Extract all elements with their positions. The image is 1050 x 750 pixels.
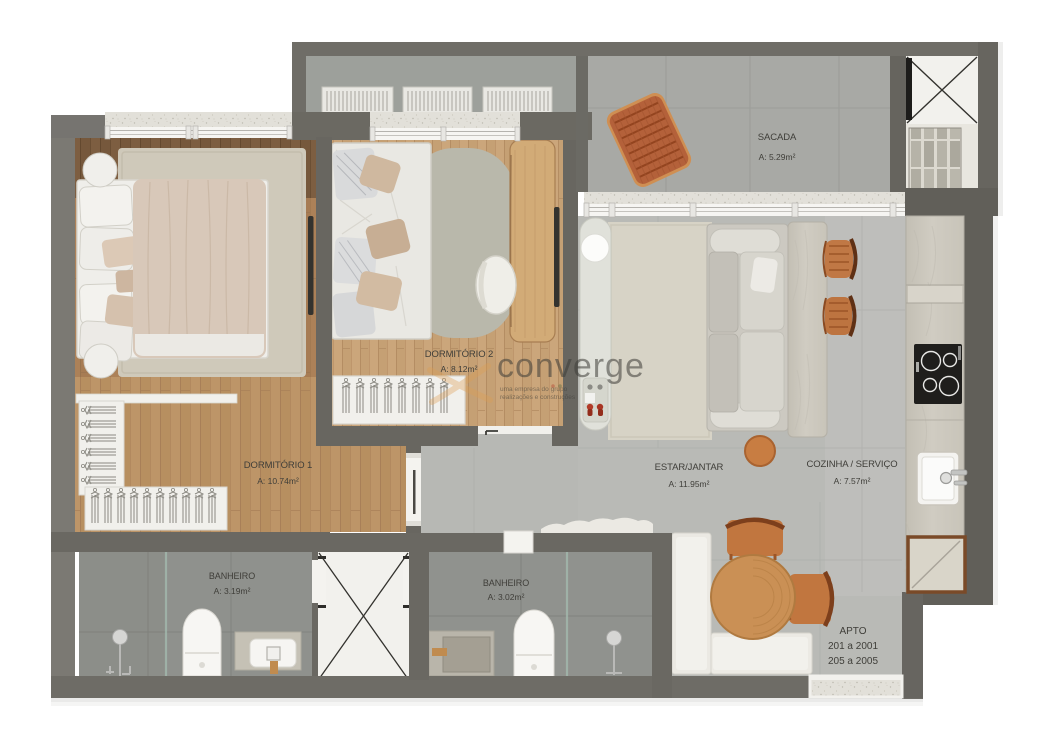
svg-text:SACADA: SACADA bbox=[758, 132, 797, 143]
svg-text:A: 3.02m²: A: 3.02m² bbox=[488, 592, 525, 602]
svg-text:DORMITÓRIO 1: DORMITÓRIO 1 bbox=[244, 460, 312, 471]
svg-text:A: 3.19m²: A: 3.19m² bbox=[214, 586, 251, 596]
svg-text:COZINHA / SERVIÇO: COZINHA / SERVIÇO bbox=[806, 459, 897, 470]
svg-text:201 a 2001: 201 a 2001 bbox=[828, 641, 878, 652]
svg-text:BANHEIRO: BANHEIRO bbox=[483, 578, 529, 588]
svg-text:converge: converge bbox=[497, 347, 645, 385]
svg-text:A: 10.74m²: A: 10.74m² bbox=[257, 476, 299, 486]
svg-text:A: 5.29m²: A: 5.29m² bbox=[759, 152, 796, 162]
svg-text:BANHEIRO: BANHEIRO bbox=[209, 571, 255, 581]
svg-text:uma empresa do grupo: uma empresa do grupo bbox=[500, 386, 568, 393]
svg-text:DORMITÓRIO 2: DORMITÓRIO 2 bbox=[425, 349, 493, 360]
svg-text:realizações e construções: realizações e construções bbox=[500, 394, 576, 401]
svg-text:APTO: APTO bbox=[839, 626, 866, 637]
svg-text:ESTAR/JANTAR: ESTAR/JANTAR bbox=[655, 462, 724, 473]
svg-text:A: 8.12m²: A: 8.12m² bbox=[441, 364, 478, 374]
svg-text:A: 11.95m²: A: 11.95m² bbox=[669, 479, 710, 489]
svg-text:205 a 2005: 205 a 2005 bbox=[828, 656, 878, 667]
svg-text:A: 7.57m²: A: 7.57m² bbox=[834, 476, 871, 486]
